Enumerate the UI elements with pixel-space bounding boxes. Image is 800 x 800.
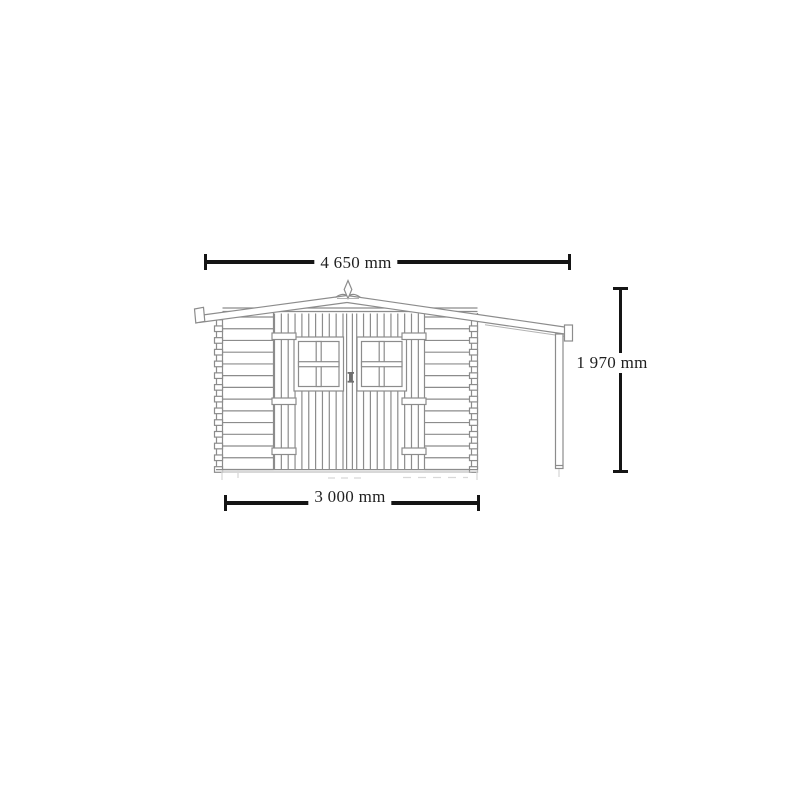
dimension-tick-left [204,254,208,270]
base-width-label: 3 000 mm [308,487,391,507]
overall-width-label: 4 650 mm [314,253,397,273]
door-windows [294,337,407,391]
dimension-tick-right [477,495,481,511]
dimension-tick-right [568,254,572,270]
dimension-tick-bottom [613,470,628,473]
dimension-tick-top [613,287,628,290]
dimension-tick-left [224,495,228,511]
canopy-post [556,334,564,469]
wall-height-label: 1 970 mm [570,353,653,373]
dimension-line [619,288,622,472]
door-handle [348,372,354,383]
shed-dimension-diagram: 4 650 mm 1 970 mm 3 000 mm [0,0,800,800]
shed-front-elevation [0,0,800,800]
right-log-wall [425,313,478,472]
ground-marks [222,469,559,480]
roof-finial [336,281,361,299]
left-log-wall [215,313,274,472]
